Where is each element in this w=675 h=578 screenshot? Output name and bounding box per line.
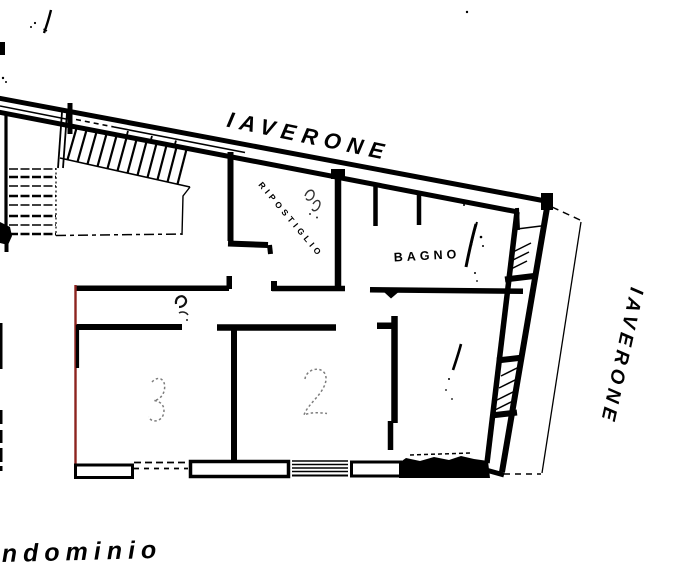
svg-text:ndominio: ndominio bbox=[1, 536, 162, 568]
